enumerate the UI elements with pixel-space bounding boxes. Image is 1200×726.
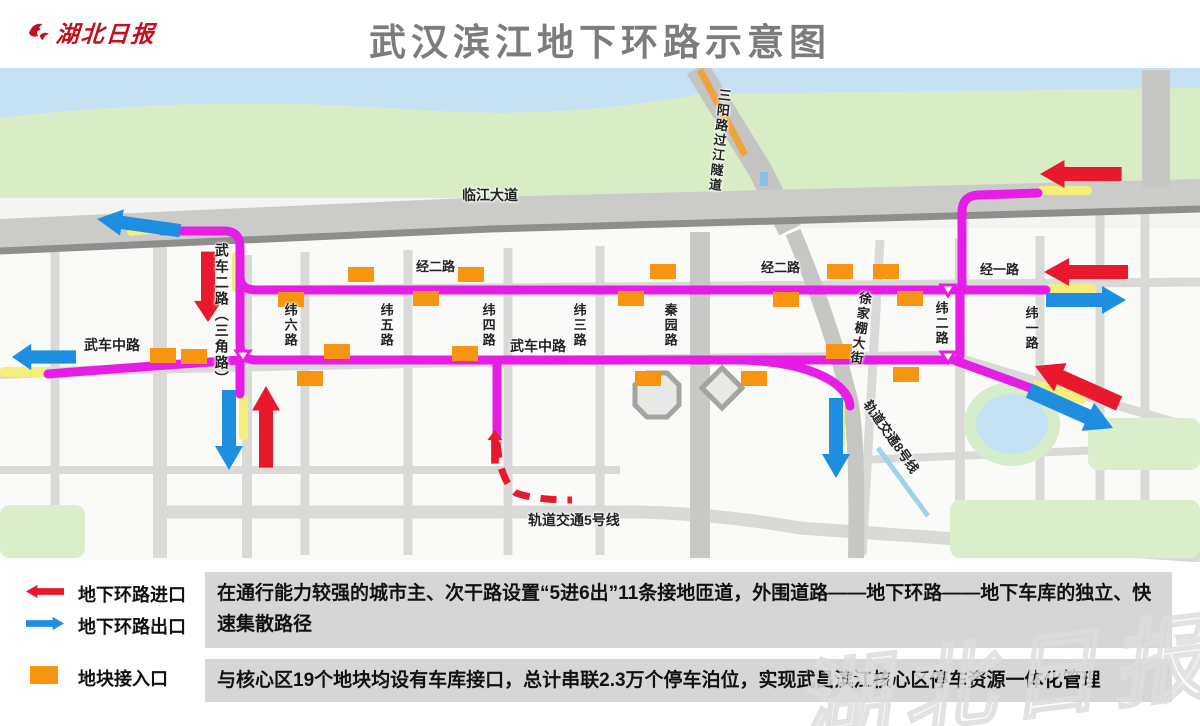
block-access-marker — [618, 291, 644, 306]
orange-square-icon — [30, 666, 58, 684]
block-access-marker — [181, 349, 207, 364]
note-parking: 与核心区19个地块均设有车库接口，总计串联2.3万个停车泊位，实现武昌滨江核心区… — [205, 659, 1172, 702]
road-label-wei5: 纬五路 — [379, 303, 393, 348]
block-access-marker — [348, 267, 374, 282]
block-access-marker — [150, 348, 176, 363]
block-access-marker — [741, 371, 767, 386]
block-access-marker — [897, 291, 923, 306]
road-label-wei3: 纬三路 — [572, 303, 586, 348]
road-label-wei4: 纬四路 — [481, 303, 495, 348]
block-access-marker — [650, 264, 676, 279]
road-label-wei6: 纬六路 — [283, 303, 297, 348]
ramp-marker — [0, 367, 47, 377]
page-title: 武汉滨江地下环路示意图 — [0, 12, 1200, 66]
road-label-metro5: 轨道交通5号线 — [528, 513, 620, 528]
pond — [976, 394, 1048, 454]
road-label-wuche2: 武车二路（三角路） — [214, 243, 229, 387]
ramp-marker — [1046, 284, 1096, 293]
legend-label-block-access: 地块接入口 — [78, 665, 168, 691]
page: 临江大道 三阳路过江隧道 经二路 经二路 经一路 武车二路（三角路） 纬六路 纬… — [0, 0, 1200, 726]
ramp-marker — [1038, 186, 1092, 195]
legend-label-exit: 地下环路出口 — [78, 613, 186, 639]
ramp-marker — [239, 396, 248, 440]
road-label-wei2: 纬二路 — [934, 301, 948, 346]
tunnel-portal-mark — [760, 172, 768, 186]
legend-label-entrance: 地下环路进口 — [78, 581, 186, 607]
road-label-wuche-mid-center: 武车中路 — [510, 339, 566, 354]
block-access-marker — [297, 371, 323, 386]
block-access-marker — [458, 267, 484, 282]
block-access-marker — [893, 367, 919, 382]
road-label-jing2-left: 经二路 — [416, 260, 455, 274]
block-access-marker — [827, 264, 853, 279]
block-access-marker — [773, 292, 799, 307]
road-label-jing2-right: 经二路 — [761, 261, 800, 275]
block-access-marker — [635, 371, 661, 386]
header: 湖北日报 武汉滨江地下环路示意图 — [0, 0, 1200, 68]
block-access-marker — [413, 291, 439, 306]
block-access-marker — [324, 344, 350, 359]
road-label-wei1: 纬一路 — [1024, 306, 1038, 351]
blue-arrow-right-icon — [26, 614, 64, 633]
note-ramps: 在通行能力较强的城市主、次干路设置“5进6出”11条接地匝道，外围道路——地下环… — [205, 572, 1172, 648]
road-label-jing1: 经一路 — [980, 263, 1019, 277]
red-arrow-left-icon — [26, 582, 64, 601]
road-label-linjiang-avenue: 临江大道 — [462, 188, 518, 203]
road-label-qinyuan: 秦园路 — [663, 303, 677, 348]
block-access-marker — [452, 346, 478, 361]
road-label-wuche-mid-left: 武车中路 — [84, 338, 140, 353]
block-access-marker — [873, 264, 899, 279]
bridge-pylon — [1142, 70, 1170, 188]
legend: 地下环路进口 地下环路出口 地块接入口 在通行能力较强的城市主、次干路设置“5进… — [0, 562, 1200, 726]
